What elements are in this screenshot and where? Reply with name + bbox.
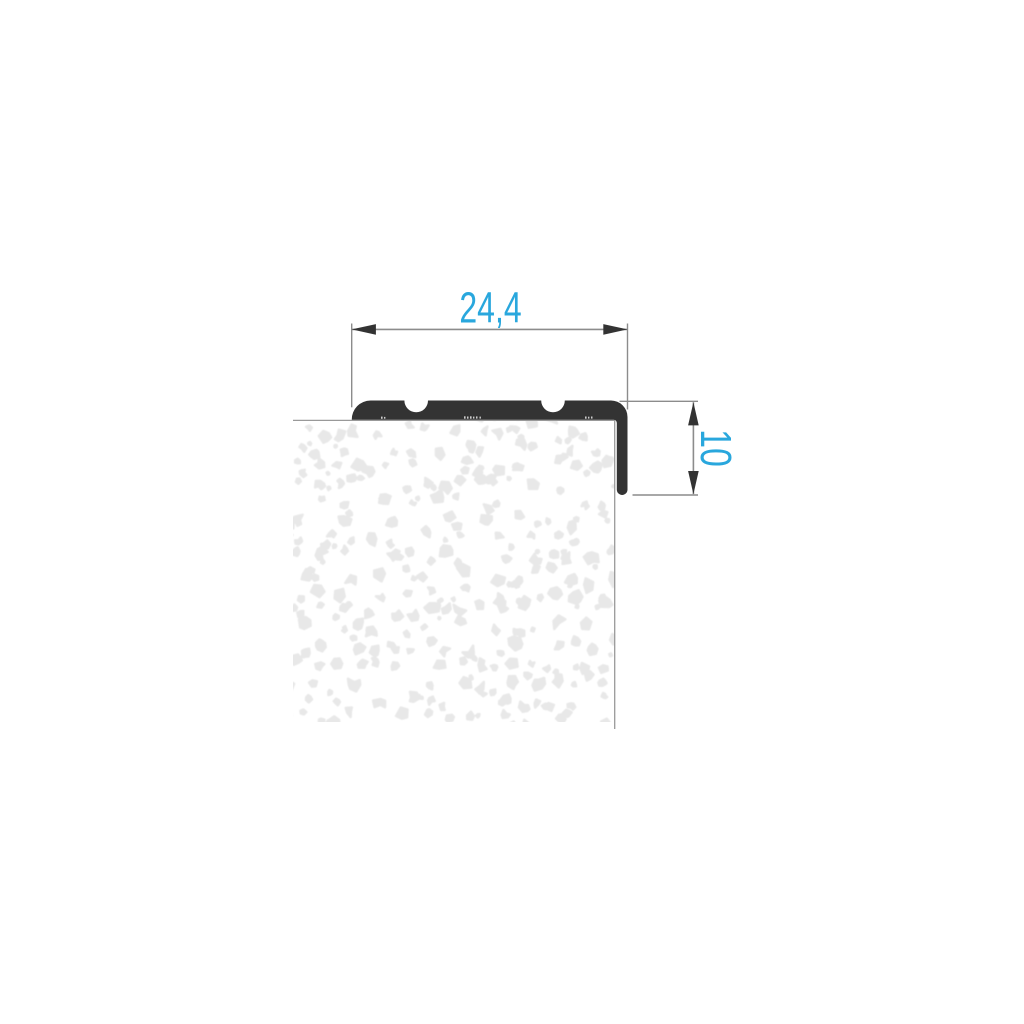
svg-text:10: 10 <box>691 429 739 467</box>
svg-text:24,4: 24,4 <box>459 284 521 333</box>
